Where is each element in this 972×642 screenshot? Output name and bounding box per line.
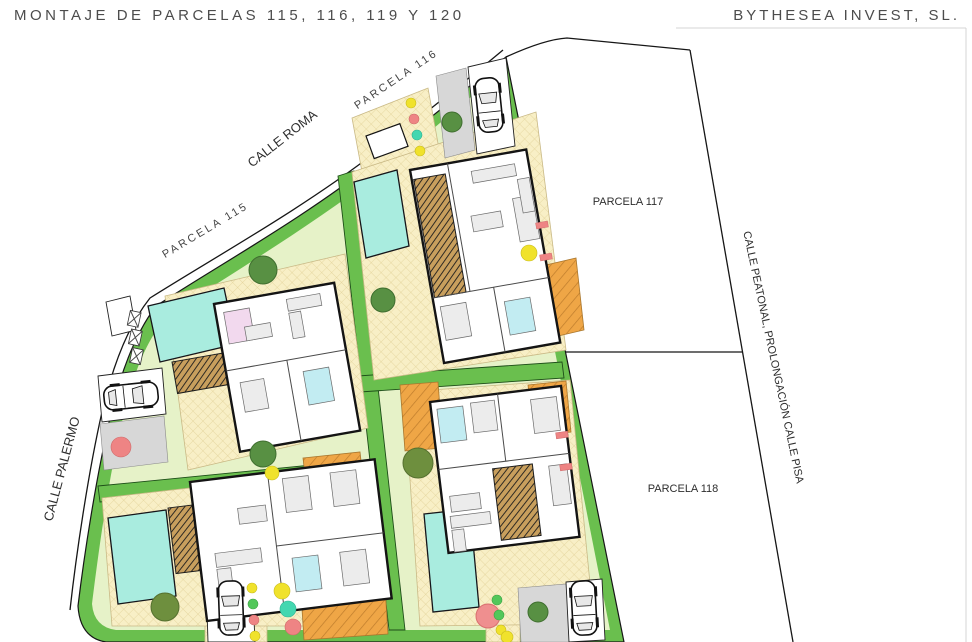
tree-icon (249, 256, 277, 284)
tree-icon (442, 112, 462, 132)
pool-119 (108, 510, 176, 604)
tree-icon (371, 288, 395, 312)
title-bar: MONTAJE DE PARCELAS 115, 116, 119 Y 120 … (0, 0, 972, 30)
house-115 (214, 283, 360, 452)
house-120 (430, 386, 580, 553)
street-label-calle-palermo: CALLE PALERMO (41, 415, 83, 523)
tree-icon (151, 593, 179, 621)
tree-icon (528, 602, 548, 622)
car-icon (569, 580, 600, 635)
car-icon (103, 379, 160, 412)
parcel-label-118: PARCELA 118 (648, 483, 719, 495)
car-icon (216, 581, 246, 636)
driveway-115 (100, 416, 168, 470)
parcel-117-top-boundary (506, 38, 690, 57)
tree-icon (403, 448, 433, 478)
site-plan-drawing: CALLE ROMA CALLE PALERMO CALLE PEATONAL,… (0, 0, 972, 642)
car-icon (472, 77, 505, 134)
drawing-title: MONTAJE DE PARCELAS 115, 116, 119 Y 120 (14, 7, 465, 24)
parcel-label-115: PARCELA 115 (160, 200, 250, 261)
parcel-label-117: PARCELA 117 (593, 196, 664, 208)
tree-icon (250, 441, 276, 467)
street-label-calle-roma: CALLE ROMA (245, 107, 321, 171)
site-plan-page: MONTAJE DE PARCELAS 115, 116, 119 Y 120 … (0, 0, 972, 642)
street-label-calle-peatonal: CALLE PEATONAL, PROLONGACIÓN CALLE PISA (740, 230, 806, 485)
company-name: BYTHESEA INVEST, SL. (733, 7, 960, 24)
